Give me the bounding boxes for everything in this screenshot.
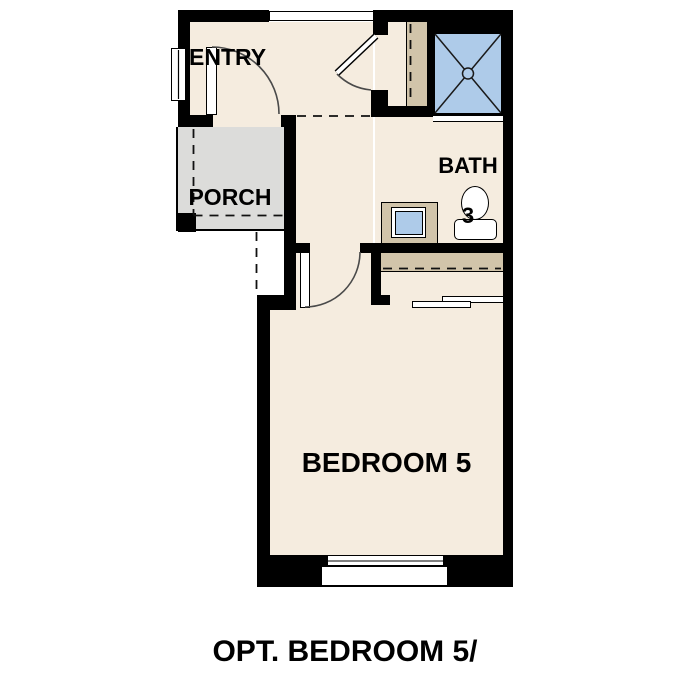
room-label-bath-line1: BATH — [430, 153, 506, 178]
wall-entry-bottom-left — [178, 115, 213, 127]
room-label-porch-text: PORCH — [188, 184, 271, 210]
wall-closet-stub — [371, 253, 381, 305]
bedroom-door-leaf — [300, 252, 310, 308]
exterior-niche — [178, 230, 284, 295]
wall-right — [503, 10, 513, 587]
wall-bathdoor-upper-stub — [373, 10, 388, 35]
wall-bath-north — [373, 106, 433, 117]
floor-plan: ENTRY PORCH BATH 3 BEDROOM 5 OPT. BEDROO… — [0, 0, 687, 687]
room-label-entry: ENTRY — [189, 17, 266, 71]
wall-shower-left — [427, 22, 433, 112]
room-label-bedroom: BEDROOM 5 — [270, 415, 503, 479]
wall-above-shower — [427, 22, 513, 32]
sink-basin — [395, 211, 423, 235]
closet-shelf — [381, 253, 503, 272]
bedroom-window-band — [327, 555, 444, 566]
shower-curb — [433, 115, 503, 122]
wall-opening — [269, 11, 374, 21]
room-label-bath-line2: 3 — [430, 203, 506, 228]
wall-top-right — [374, 10, 513, 22]
room-label-bedroom-text: BEDROOM 5 — [302, 447, 472, 478]
plan-caption: OPT. BEDROOM 5/ BATH 3 — [134, 601, 556, 687]
linen-shelf — [406, 22, 427, 106]
entry-window — [171, 48, 186, 101]
sliding-door-panel-front — [412, 301, 471, 308]
bedroom-window-sill — [321, 566, 448, 586]
wall-bedroom-west — [257, 295, 270, 587]
room-label-porch: PORCH — [176, 157, 284, 211]
wall-hall-west — [284, 115, 296, 310]
wall-closet-stub-foot — [381, 295, 390, 305]
plan-caption-line1: OPT. BEDROOM 5/ — [134, 635, 556, 669]
room-label-bath: BATH 3 — [430, 128, 506, 253]
room-label-entry-text: ENTRY — [189, 44, 266, 70]
shower-pan — [433, 32, 503, 115]
porch-post — [178, 213, 196, 232]
